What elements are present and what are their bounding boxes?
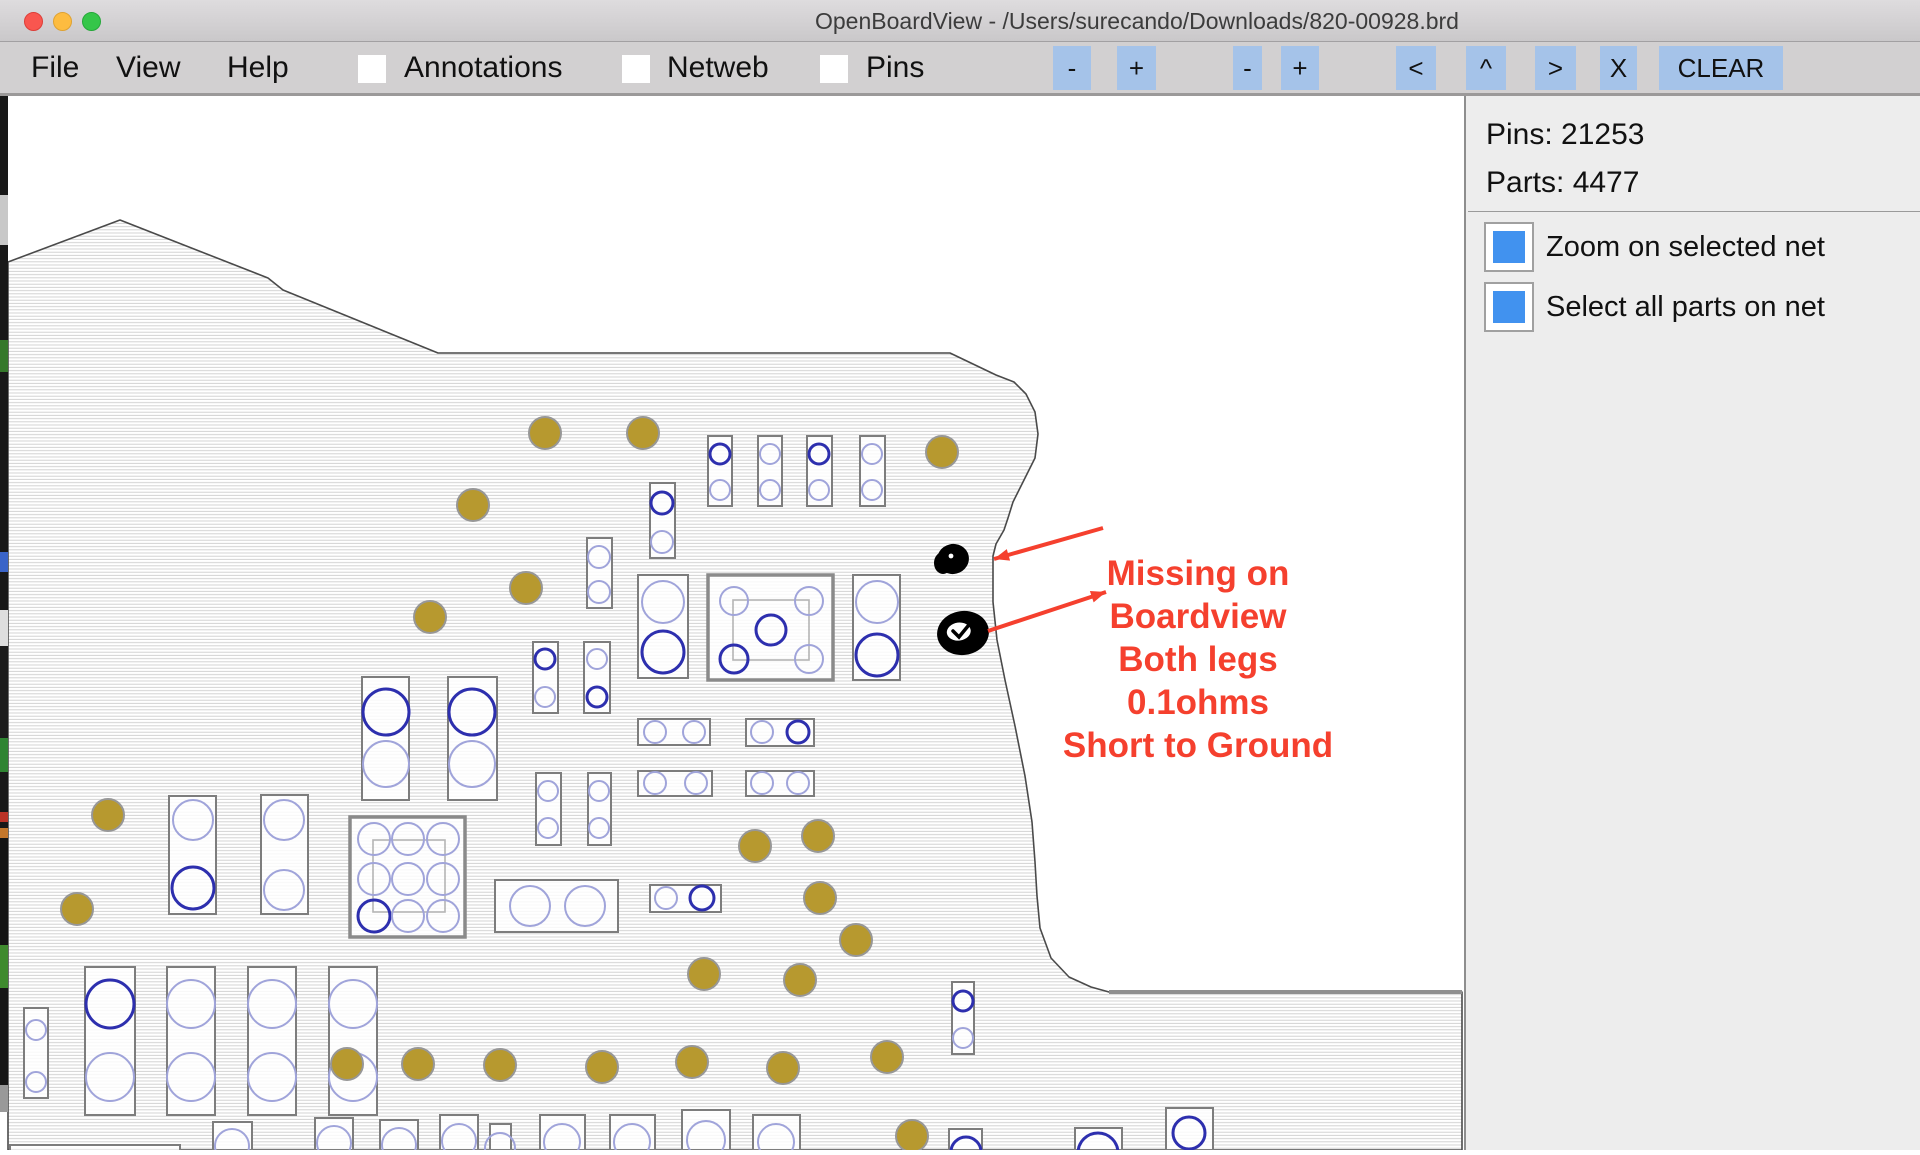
- gold-pad[interactable]: [484, 1049, 516, 1081]
- board-edge-sliver: [0, 195, 8, 245]
- zoom-button[interactable]: [82, 12, 101, 31]
- annotation-arrow: [988, 591, 1106, 631]
- component[interactable]: [588, 773, 611, 845]
- gold-pad[interactable]: [586, 1051, 618, 1083]
- board-edge-sliver: [0, 340, 8, 372]
- component[interactable]: [682, 1110, 730, 1150]
- menu-view[interactable]: View: [116, 42, 180, 93]
- toolbar-button-x-7[interactable]: X: [1600, 46, 1637, 90]
- board-edge-sliver: [0, 552, 8, 572]
- board-edge-sliver: [0, 772, 8, 812]
- toolbar-button-^-5[interactable]: ^: [1466, 46, 1506, 90]
- gold-pad[interactable]: [92, 799, 124, 831]
- toolbar-button-clear-8[interactable]: CLEAR: [1659, 46, 1783, 90]
- board-canvas[interactable]: Missing onBoardviewBoth legs0.1ohmsShort…: [0, 96, 1464, 1150]
- gold-pad[interactable]: [331, 1048, 363, 1080]
- board-edge-sliver: [0, 812, 8, 822]
- board-view[interactable]: [0, 96, 1464, 1150]
- menu-file[interactable]: File: [31, 42, 79, 93]
- sidebar-divider: [1468, 211, 1920, 212]
- toolbar-button---2[interactable]: -: [1233, 46, 1262, 90]
- menubar: File View Help AnnotationsNetwebPins -+-…: [0, 42, 1920, 96]
- component[interactable]: [584, 642, 610, 713]
- titlebar: OpenBoardView - /Users/surecando/Downloa…: [0, 0, 1920, 42]
- component[interactable]: [485, 1124, 515, 1150]
- component[interactable]: [167, 967, 215, 1115]
- gold-pad[interactable]: [529, 417, 561, 449]
- component[interactable]: [169, 796, 216, 914]
- sidebar-checkbox-0[interactable]: [1484, 222, 1534, 272]
- toolbar-button->-6[interactable]: >: [1535, 46, 1576, 90]
- component[interactable]: [746, 719, 814, 746]
- toolbar-button-<-4[interactable]: <: [1396, 46, 1436, 90]
- gold-pad[interactable]: [871, 1041, 903, 1073]
- board-edge-sliver: [0, 372, 8, 552]
- toolbar-button-+-3[interactable]: +: [1281, 46, 1319, 90]
- component[interactable]: [807, 436, 832, 506]
- board-edge-sliver: [0, 1085, 8, 1112]
- gold-pad[interactable]: [402, 1048, 434, 1080]
- component[interactable]: [536, 773, 561, 845]
- component[interactable]: [315, 1118, 353, 1150]
- component[interactable]: [448, 677, 497, 800]
- board-edge-sliver: [0, 838, 8, 945]
- component[interactable]: [610, 1115, 655, 1150]
- component[interactable]: [708, 436, 732, 506]
- gold-pad[interactable]: [804, 882, 836, 914]
- component[interactable]: [350, 817, 465, 937]
- component[interactable]: [758, 436, 782, 506]
- component[interactable]: [860, 436, 885, 506]
- component[interactable]: [1166, 1108, 1213, 1150]
- component[interactable]: [495, 880, 618, 932]
- gold-pad[interactable]: [739, 830, 771, 862]
- gold-pad[interactable]: [802, 820, 834, 852]
- checkbox-checked-icon: [1493, 231, 1525, 263]
- netweb-checkbox[interactable]: [622, 55, 650, 83]
- pins-toggle-label: Pins: [866, 42, 924, 93]
- minimize-button[interactable]: [53, 12, 72, 31]
- component[interactable]: [24, 1008, 48, 1098]
- pins-checkbox[interactable]: [820, 55, 848, 83]
- component[interactable]: [540, 1115, 585, 1150]
- sidebar-option-label-0: Zoom on selected net: [1546, 222, 1825, 272]
- toolbar-button-+-1[interactable]: +: [1117, 46, 1156, 90]
- component[interactable]: [10, 1145, 180, 1150]
- gold-pad[interactable]: [676, 1046, 708, 1078]
- board-edge-sliver: [0, 822, 8, 828]
- component[interactable]: [213, 1122, 252, 1150]
- board-edge-sliver: [0, 646, 8, 738]
- board-edge-sliver: [0, 572, 8, 610]
- board-edge-sliver: [0, 828, 8, 838]
- netweb-toggle-label: Netweb: [667, 42, 769, 93]
- pcb-outline: [8, 220, 1462, 1150]
- gold-pad[interactable]: [767, 1052, 799, 1084]
- checkbox-checked-icon: [1493, 291, 1525, 323]
- component[interactable]: [650, 885, 721, 912]
- component[interactable]: [587, 538, 612, 608]
- component[interactable]: [952, 982, 974, 1054]
- board-edge-sliver: [0, 96, 8, 195]
- gold-pad[interactable]: [688, 958, 720, 990]
- component[interactable]: [1075, 1128, 1122, 1150]
- pins-count: Pins: 21253: [1486, 118, 1644, 152]
- component[interactable]: [853, 575, 900, 680]
- component[interactable]: [638, 575, 688, 678]
- component[interactable]: [85, 967, 135, 1115]
- component[interactable]: [261, 795, 308, 914]
- gold-pad[interactable]: [840, 924, 872, 956]
- sidebar: Pins: 21253 Parts: 4477 Zoom on selected…: [1464, 96, 1920, 1150]
- component[interactable]: [533, 642, 558, 713]
- component[interactable]: [708, 575, 833, 680]
- gold-pad[interactable]: [896, 1120, 928, 1150]
- sidebar-option-label-1: Select all parts on net: [1546, 282, 1825, 332]
- component[interactable]: [746, 771, 814, 796]
- gold-pad[interactable]: [457, 489, 489, 521]
- gold-pad[interactable]: [61, 893, 93, 925]
- board-edge-sliver: [0, 245, 8, 340]
- component[interactable]: [440, 1115, 478, 1150]
- gold-pad[interactable]: [926, 436, 958, 468]
- component[interactable]: [248, 967, 296, 1115]
- sidebar-checkbox-1[interactable]: [1484, 282, 1534, 332]
- component[interactable]: [329, 967, 377, 1115]
- component[interactable]: [638, 771, 712, 796]
- component[interactable]: [650, 483, 675, 558]
- parts-count: Parts: 4477: [1486, 166, 1639, 200]
- annotations-toggle-label: Annotations: [404, 42, 562, 93]
- gold-pad[interactable]: [414, 601, 446, 633]
- component[interactable]: [380, 1120, 418, 1150]
- board-edge-sliver: [0, 738, 8, 772]
- window-title: OpenBoardView - /Users/surecando/Downloa…: [815, 0, 1459, 42]
- board-edge-sliver: [0, 945, 8, 988]
- component[interactable]: [949, 1129, 982, 1150]
- annotations-checkbox[interactable]: [358, 55, 386, 83]
- close-button[interactable]: [24, 12, 43, 31]
- component[interactable]: [638, 719, 710, 745]
- board-edge-sliver: [0, 988, 8, 1085]
- menu-help[interactable]: Help: [227, 42, 289, 93]
- gold-pad[interactable]: [627, 417, 659, 449]
- gold-pad[interactable]: [510, 572, 542, 604]
- board-edge-sliver: [0, 610, 8, 646]
- annotation-arrow: [994, 528, 1103, 561]
- component[interactable]: [753, 1115, 800, 1150]
- component[interactable]: [362, 677, 409, 800]
- toolbar-button---0[interactable]: -: [1053, 46, 1091, 90]
- gold-pad[interactable]: [784, 964, 816, 996]
